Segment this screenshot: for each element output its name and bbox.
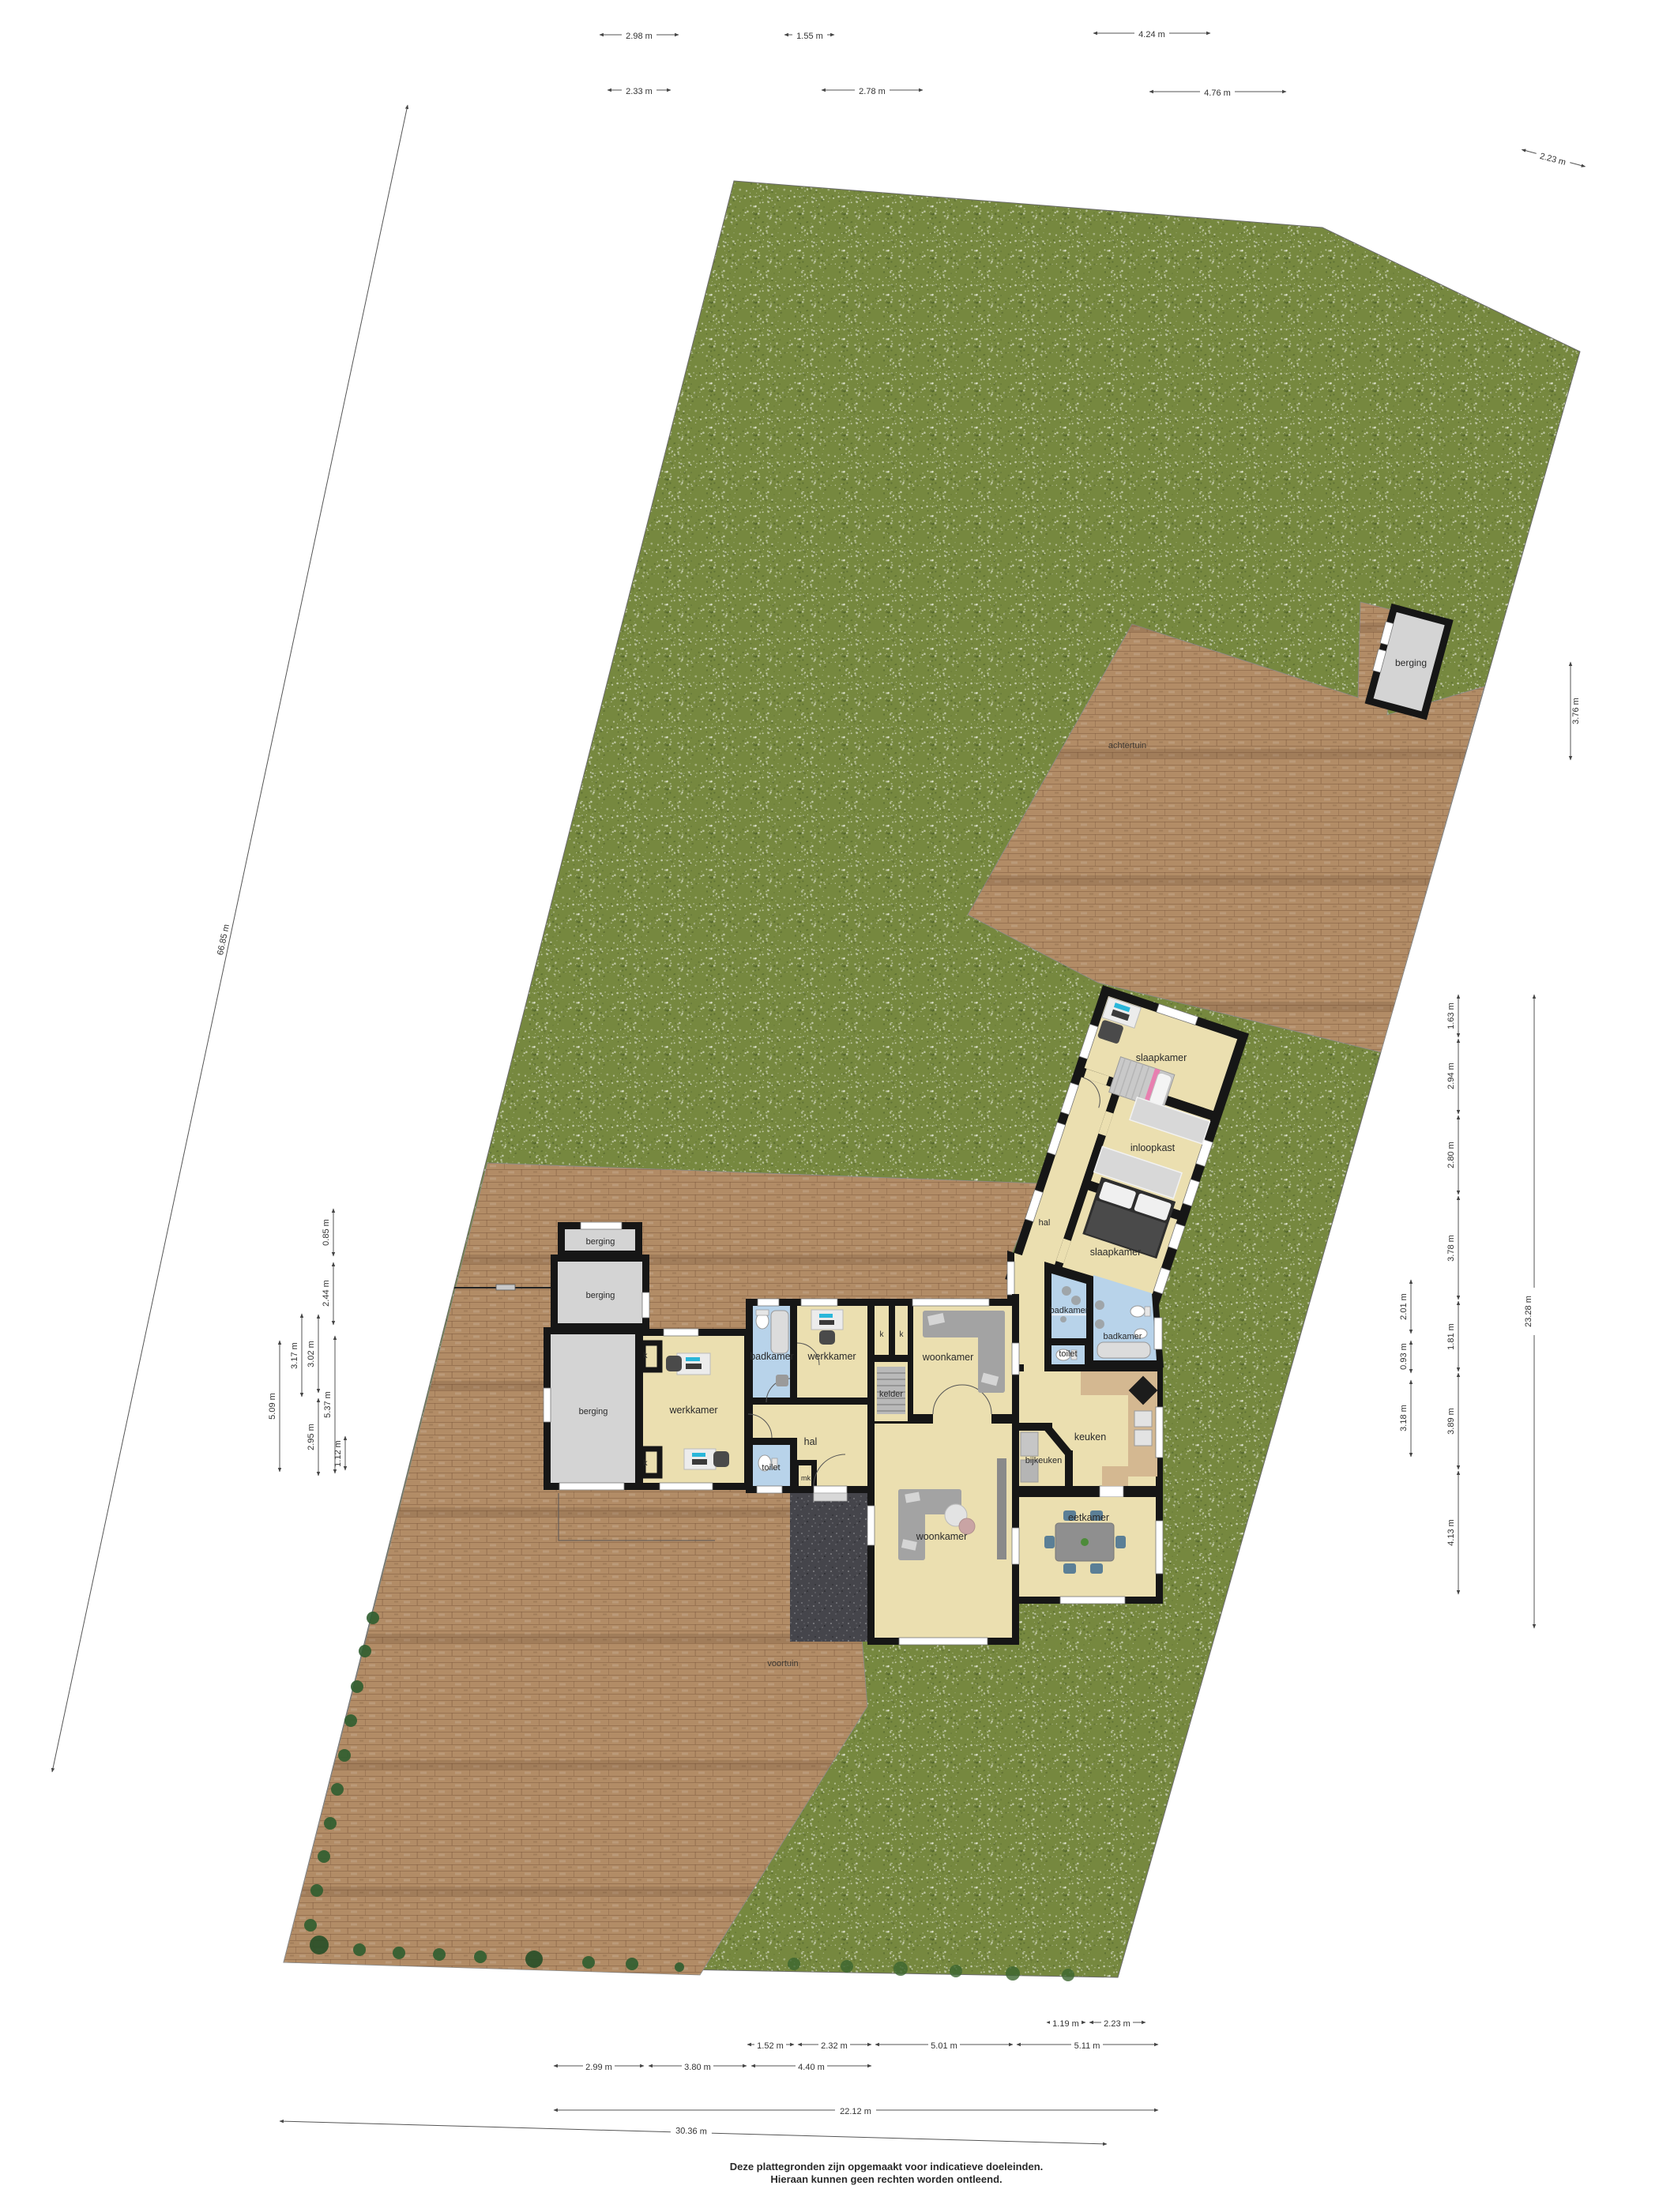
svg-text:1.63 m: 1.63 m (1446, 1003, 1456, 1029)
svg-text:2.78 m: 2.78 m (859, 87, 886, 96)
svg-text:voortuin: voortuin (767, 1659, 798, 1668)
svg-text:werkkamer: werkkamer (807, 1351, 856, 1362)
svg-text:1.81 m: 1.81 m (1446, 1323, 1456, 1350)
svg-text:woonkamer: woonkamer (922, 1352, 974, 1363)
svg-text:4.76 m: 4.76 m (1204, 88, 1231, 98)
svg-text:4.40 m: 4.40 m (798, 2063, 825, 2072)
svg-text:3.18 m: 3.18 m (1399, 1405, 1409, 1431)
svg-text:2.99 m: 2.99 m (585, 2063, 612, 2072)
svg-text:badkamer: badkamer (1050, 1306, 1089, 1315)
svg-text:5.01 m: 5.01 m (931, 2041, 957, 2051)
svg-text:3.02 m: 3.02 m (307, 1341, 316, 1367)
svg-text:1.12 m: 1.12 m (333, 1440, 343, 1467)
svg-text:1.19 m: 1.19 m (1052, 2019, 1079, 2029)
svg-text:slaapkamer: slaapkamer (1136, 1052, 1187, 1063)
svg-text:woonkamer: woonkamer (916, 1531, 968, 1542)
svg-text:berging: berging (586, 1291, 615, 1300)
svg-text:bijkeuken: bijkeuken (1025, 1456, 1062, 1465)
svg-text:Deze plattegronden zijn opgema: Deze plattegronden zijn opgemaakt voor i… (730, 2161, 1044, 2172)
svg-text:2.23 m: 2.23 m (1104, 2019, 1130, 2029)
svg-text:hal: hal (804, 1436, 818, 1447)
svg-text:mk: mk (801, 1474, 811, 1482)
svg-text:2.94 m: 2.94 m (1446, 1063, 1456, 1089)
svg-text:4.13 m: 4.13 m (1446, 1519, 1456, 1546)
svg-text:kelder: kelder (879, 1390, 903, 1399)
svg-text:slaapkamer: slaapkamer (1090, 1247, 1142, 1258)
svg-text:berging: berging (1395, 657, 1427, 668)
svg-text:achtertuin: achtertuin (1108, 741, 1146, 750)
svg-text:3.78 m: 3.78 m (1446, 1235, 1456, 1262)
svg-text:2.80 m: 2.80 m (1446, 1142, 1456, 1168)
svg-text:5.09 m: 5.09 m (268, 1393, 277, 1420)
svg-text:3.80 m: 3.80 m (684, 2063, 711, 2072)
svg-text:23.28 m: 23.28 m (1524, 1296, 1533, 1327)
svg-text:badkamer: badkamer (750, 1351, 794, 1362)
svg-text:1.52 m: 1.52 m (757, 2041, 784, 2051)
svg-text:4.24 m: 4.24 m (1138, 30, 1165, 39)
svg-text:berging: berging (579, 1407, 608, 1416)
svg-text:2.32 m: 2.32 m (821, 2041, 848, 2051)
svg-text:22.12 m: 22.12 m (840, 2107, 871, 2116)
svg-text:berging: berging (586, 1237, 615, 1247)
svg-text:5.11 m: 5.11 m (1074, 2041, 1100, 2051)
svg-text:werkkamer: werkkamer (668, 1405, 717, 1416)
svg-text:inloopkast: inloopkast (1130, 1142, 1176, 1153)
svg-text:2.95 m: 2.95 m (307, 1424, 316, 1450)
svg-text:toilet: toilet (1059, 1349, 1077, 1359)
svg-text:1.55 m: 1.55 m (796, 32, 823, 41)
svg-text:keuken: keuken (1074, 1431, 1106, 1443)
svg-text:2.01 m: 2.01 m (1399, 1293, 1409, 1320)
svg-text:0.93 m: 0.93 m (1399, 1343, 1409, 1370)
svg-text:hal: hal (1039, 1218, 1051, 1228)
svg-text:badkamer: badkamer (1104, 1332, 1142, 1341)
svg-text:2.33 m: 2.33 m (626, 87, 653, 96)
svg-text:2.44 m: 2.44 m (322, 1280, 331, 1307)
svg-text:3.17 m: 3.17 m (290, 1342, 299, 1369)
svg-text:toilet: toilet (762, 1463, 780, 1473)
svg-text:5.37 m: 5.37 m (323, 1391, 333, 1418)
svg-text:eetkamer: eetkamer (1068, 1512, 1109, 1523)
svg-text:3.89 m: 3.89 m (1446, 1408, 1456, 1435)
svg-text:30.36 m: 30.36 m (675, 2126, 707, 2136)
svg-text:3.76 m: 3.76 m (1571, 698, 1581, 724)
svg-text:2.98 m: 2.98 m (626, 32, 653, 41)
svg-text:0.85 m: 0.85 m (322, 1219, 331, 1246)
svg-text:Hieraan kunnen geen rechten wo: Hieraan kunnen geen rechten worden ontle… (770, 2173, 1002, 2185)
